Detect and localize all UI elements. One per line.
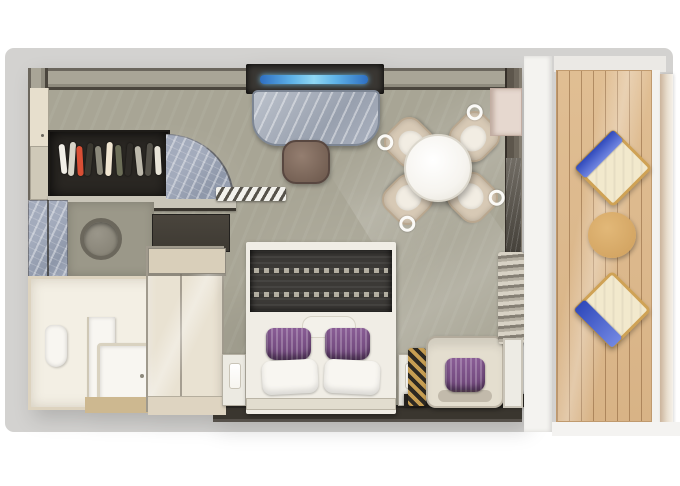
king-bed xyxy=(246,242,396,414)
tv-screen xyxy=(260,75,368,84)
shower-base xyxy=(148,396,226,415)
garment xyxy=(68,142,76,176)
dining-table xyxy=(404,134,472,202)
cabinet-knob xyxy=(41,134,44,137)
garment xyxy=(125,143,134,176)
table-lamp xyxy=(229,363,241,389)
garment xyxy=(154,146,162,175)
round-basin xyxy=(80,218,122,260)
wardrobe-closet xyxy=(50,132,168,198)
bed-throw-blanket xyxy=(250,250,392,312)
exterior-wall-strip xyxy=(524,56,552,432)
window-alcove xyxy=(490,88,522,136)
toilet xyxy=(45,325,67,367)
balcony-railing xyxy=(660,74,673,428)
nightstand-left xyxy=(222,354,246,406)
marble-wall-panel xyxy=(28,200,68,278)
garment xyxy=(58,144,67,174)
glass-shine xyxy=(148,274,226,396)
balcony-side-table xyxy=(588,212,636,258)
garment xyxy=(134,146,143,176)
armchair xyxy=(426,336,504,408)
marble-column xyxy=(506,158,521,254)
white-pillow xyxy=(261,359,319,396)
suite-room xyxy=(28,68,522,422)
garment xyxy=(76,146,84,176)
marble-desk xyxy=(252,90,380,146)
seat-shadow xyxy=(438,390,492,402)
balcony-bottom-band xyxy=(552,422,680,436)
sliding-door-panel xyxy=(503,338,523,408)
white-pillow xyxy=(323,359,381,396)
entry-door-leaf xyxy=(216,187,286,201)
floorplan-render xyxy=(0,0,680,486)
throw-stitch-stripe xyxy=(254,268,388,273)
deck-edge-gap xyxy=(652,70,660,426)
bed-area xyxy=(222,240,424,418)
garment xyxy=(115,145,123,176)
tub-drain xyxy=(140,374,144,378)
garment xyxy=(105,142,113,176)
balcony xyxy=(552,56,680,432)
armchair-purple-pillow xyxy=(445,358,485,392)
purple-accent-pillow xyxy=(266,328,311,360)
gathered-curtains xyxy=(498,252,524,344)
throw-stitch-stripe xyxy=(254,292,388,297)
shower-top-frame xyxy=(148,248,226,276)
garment xyxy=(145,143,153,176)
panel-seam xyxy=(47,200,49,278)
desk-stool xyxy=(282,140,330,184)
glass-shower xyxy=(146,246,224,412)
luggage-rack xyxy=(408,348,426,406)
garment xyxy=(84,143,93,176)
purple-accent-pillow xyxy=(325,328,370,360)
headboard xyxy=(246,398,396,410)
garment xyxy=(95,146,104,175)
